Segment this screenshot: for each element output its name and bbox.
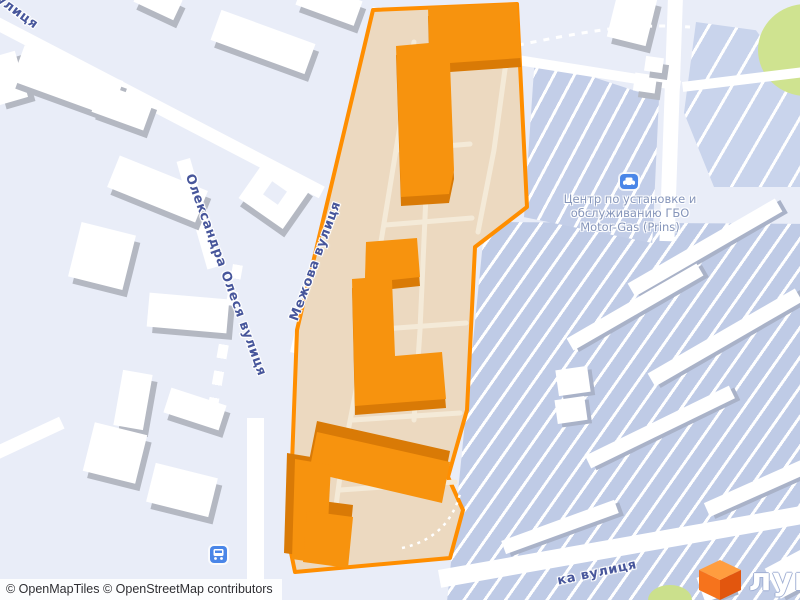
footpath-dotted bbox=[505, 26, 690, 48]
poi-label-line3: Motor-Gas (Prins) bbox=[548, 220, 712, 234]
orange-building-south-square bbox=[303, 511, 353, 568]
attribution-bar[interactable]: © OpenMapTiles © OpenStreetMap contribut… bbox=[0, 579, 282, 600]
poi-marker[interactable] bbox=[620, 174, 638, 189]
map-canvas[interactable]: Олександра Олеся вулиця Межова вулиця ул… bbox=[0, 0, 800, 600]
poi-label-line2: обслуживанию ГБО bbox=[548, 206, 712, 220]
poi-label[interactable]: Центр по установке и обслуживанию ГБО Mo… bbox=[548, 192, 712, 234]
attribution-text[interactable]: © OpenMapTiles © OpenStreetMap contribut… bbox=[6, 582, 273, 596]
lun-cube-icon bbox=[697, 558, 743, 600]
poi-label-line1: Центр по установке и bbox=[548, 192, 712, 206]
lun-logo[interactable]: лун bbox=[697, 558, 800, 600]
bus-icon bbox=[210, 546, 227, 563]
parcel-highlight bbox=[0, 0, 800, 600]
lun-logo-text: лун bbox=[749, 562, 800, 598]
car-icon bbox=[620, 174, 638, 189]
bus-stop-icon bbox=[210, 546, 227, 563]
